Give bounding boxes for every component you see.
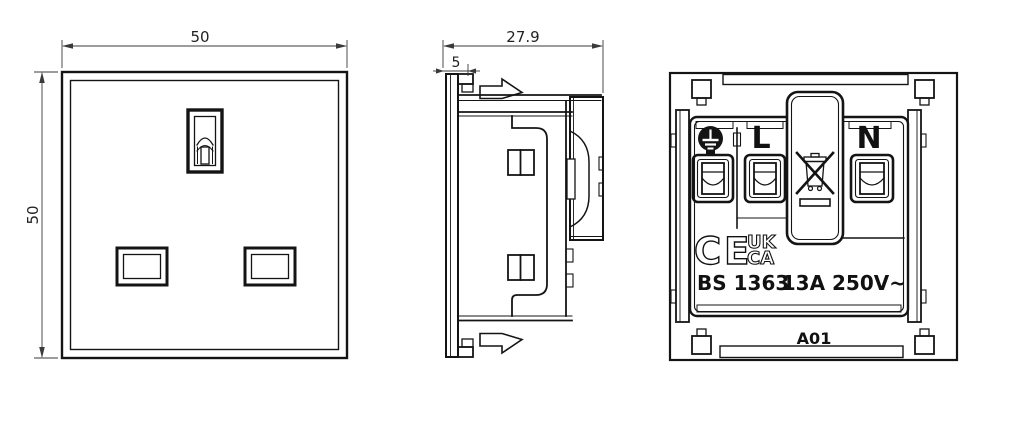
- side-terminal-window-top: [508, 150, 534, 175]
- rear-right-rail: [908, 110, 926, 322]
- rear-clip-top-right: [915, 80, 934, 105]
- neutral-pin-slot: [245, 248, 295, 285]
- live-terminal-block: [745, 155, 785, 202]
- model-label: A01: [797, 329, 832, 348]
- socket-module-drawing: 50 50: [0, 0, 1024, 421]
- rear-clip-bottom-right: [915, 329, 934, 354]
- technical-drawing-canvas: 50 50: [0, 0, 1024, 421]
- rear-left-rail: [671, 110, 689, 322]
- live-pin-slot: [117, 248, 167, 285]
- neutral-terminal-label: N: [856, 121, 881, 156]
- front-faceplate-inner-outline: [71, 81, 339, 350]
- front-view: 50 50: [24, 28, 347, 358]
- rear-clip-bottom-left: [692, 329, 711, 354]
- side-faceplate-edge: [446, 74, 458, 357]
- rear-clip-top-left: [692, 80, 711, 105]
- rear-view: L N: [670, 73, 957, 360]
- side-bottom-clip-arrow: [480, 334, 522, 354]
- side-terminal-window-bottom: [508, 255, 534, 280]
- side-body-recess: [512, 116, 547, 316]
- standard-label: BS 1363: [697, 271, 789, 295]
- rear-central-strip: [787, 92, 843, 244]
- side-top-flange: [458, 74, 473, 84]
- side-depth-value: 27.9: [506, 28, 539, 46]
- front-faceplate-outline: [62, 72, 347, 358]
- neutral-terminal-block: [851, 155, 893, 202]
- rating-label: 13A 250V~: [782, 271, 906, 295]
- side-view: 27.9 5: [433, 28, 603, 357]
- live-terminal-label: L: [751, 121, 770, 156]
- side-bottom-flange: [458, 347, 473, 357]
- earth-terminal-block: [693, 155, 733, 202]
- earth-pin-aperture: [188, 110, 222, 172]
- dimension-side-flange: 5: [433, 55, 480, 76]
- front-width-value: 50: [190, 28, 209, 46]
- rear-top-slot: [723, 75, 908, 85]
- ce-mark-icon: CE: [694, 230, 752, 273]
- ukca-mark-icon-line2: CA: [747, 248, 774, 269]
- dimension-front-width: 50: [62, 28, 347, 68]
- side-flange-value: 5: [452, 55, 461, 71]
- side-rear-box: [567, 97, 603, 240]
- earth-ground-icon: [698, 126, 723, 154]
- dimension-front-height: 50: [24, 72, 58, 358]
- front-height-value: 50: [24, 205, 42, 224]
